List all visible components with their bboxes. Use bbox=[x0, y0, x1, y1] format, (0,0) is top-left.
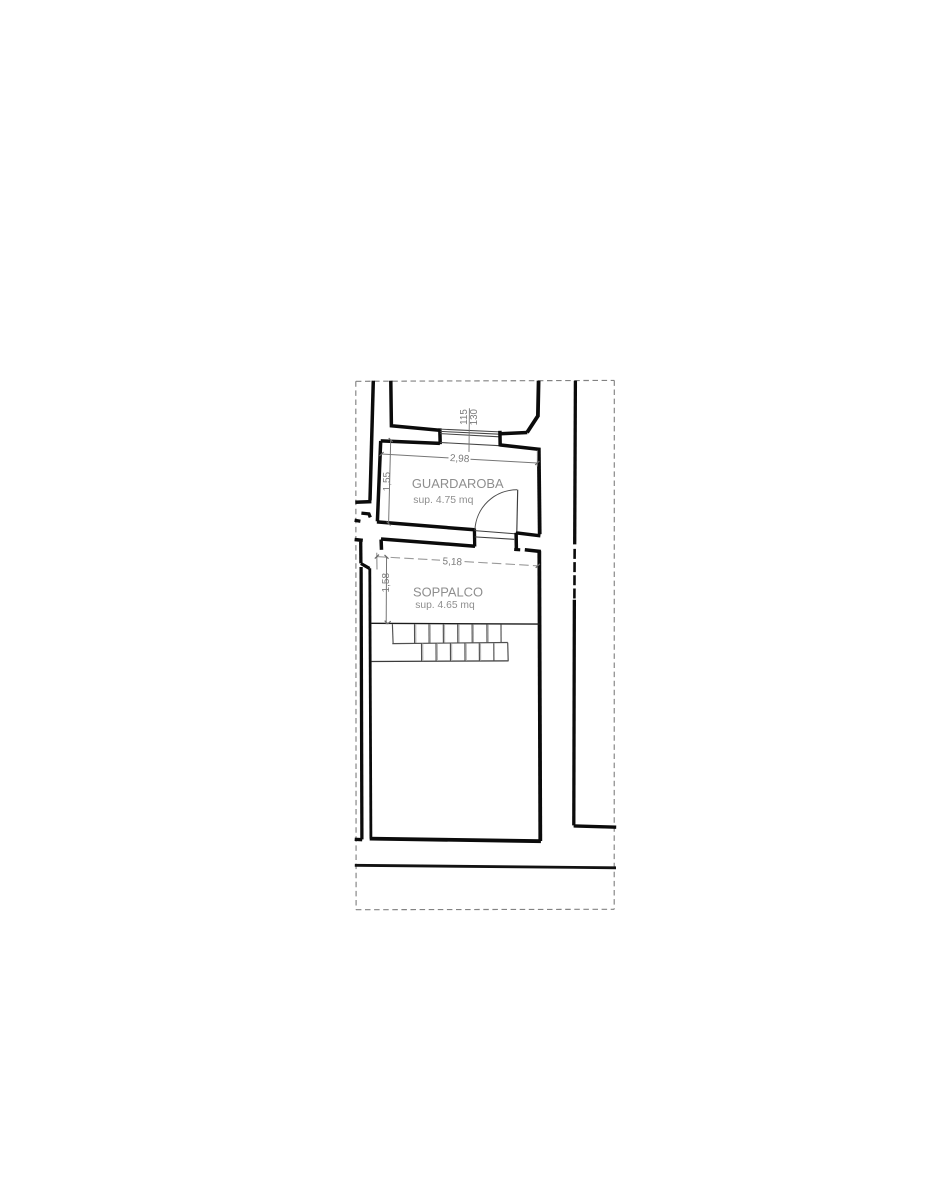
svg-text:1,58: 1,58 bbox=[381, 573, 392, 593]
svg-text:SOPPALCO: SOPPALCO bbox=[413, 584, 483, 599]
svg-text:2,98: 2,98 bbox=[450, 453, 471, 465]
svg-text:1,55: 1,55 bbox=[382, 471, 393, 491]
svg-text:GUARDAROBA: GUARDAROBA bbox=[412, 476, 504, 491]
svg-text:sup. 4.75 mq: sup. 4.75 mq bbox=[413, 495, 473, 506]
svg-text:sup. 4.65 mq: sup. 4.65 mq bbox=[415, 600, 475, 611]
svg-text:130: 130 bbox=[469, 408, 480, 425]
svg-text:5,18: 5,18 bbox=[442, 556, 463, 568]
